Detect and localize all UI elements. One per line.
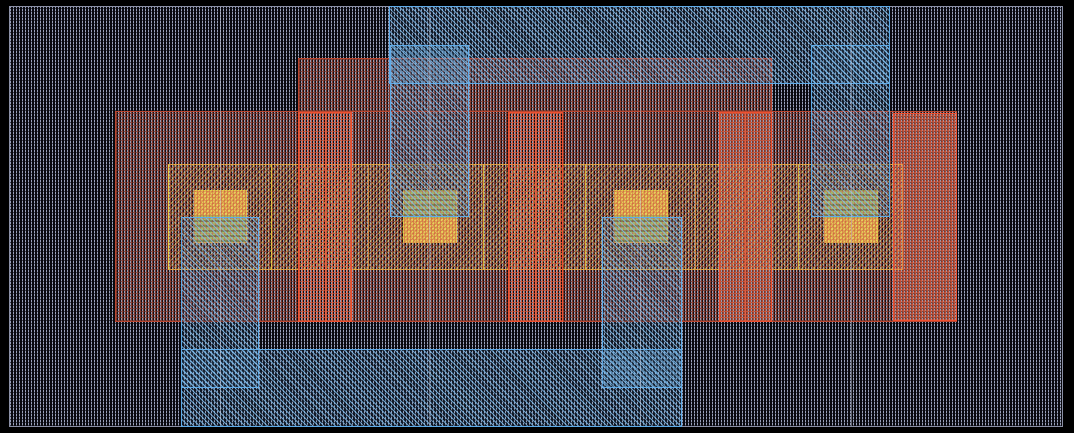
gate-center-edge <box>745 112 746 322</box>
gate-center-edge <box>325 112 326 322</box>
right-select-region[interactable] <box>893 113 957 321</box>
grid-line <box>429 7 430 426</box>
grid-line <box>851 7 852 426</box>
metal-bottom-rail[interactable] <box>181 349 682 427</box>
layout-canvas[interactable] <box>0 0 1074 433</box>
grid-line <box>640 7 641 426</box>
grid-line <box>220 7 221 426</box>
gate-center-edge <box>535 112 536 322</box>
